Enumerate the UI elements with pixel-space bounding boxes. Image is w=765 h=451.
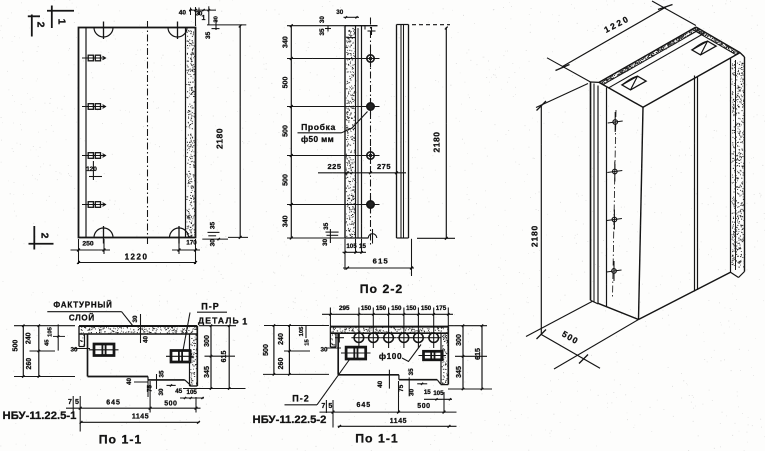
svg-text:35: 35 [210, 222, 217, 230]
svg-text:40: 40 [179, 10, 187, 17]
svg-text:150: 150 [361, 305, 372, 312]
svg-text:2180: 2180 [432, 132, 442, 153]
svg-text:40: 40 [143, 336, 150, 344]
svg-text:1220: 1220 [125, 252, 149, 261]
svg-text:45: 45 [45, 339, 51, 346]
svg-text:500: 500 [417, 403, 430, 410]
svg-text:120: 120 [86, 166, 97, 173]
svg-text:75: 75 [398, 384, 405, 392]
svg-text:1: 1 [202, 15, 206, 22]
svg-text:500: 500 [13, 340, 20, 352]
svg-text:40: 40 [377, 380, 384, 388]
svg-text:П-2: П-2 [292, 393, 309, 403]
svg-text:340: 340 [283, 36, 290, 48]
svg-text:35: 35 [408, 368, 415, 376]
svg-text:7: 7 [321, 403, 325, 410]
svg-text:150: 150 [406, 305, 417, 312]
svg-text:240: 240 [26, 332, 33, 344]
svg-text:7: 7 [68, 399, 72, 406]
svg-text:15: 15 [359, 243, 366, 250]
svg-text:30: 30 [210, 239, 217, 247]
svg-text:105: 105 [187, 389, 198, 396]
svg-text:45: 45 [175, 388, 182, 395]
svg-text:СЛОЙ: СЛОЙ [69, 314, 95, 323]
svg-text:2: 2 [39, 233, 51, 239]
svg-text:П-Р: П-Р [201, 301, 219, 311]
svg-text:150: 150 [376, 305, 387, 312]
svg-text:150: 150 [421, 305, 432, 312]
svg-text:30: 30 [132, 315, 139, 323]
svg-text:35: 35 [159, 370, 166, 378]
svg-text:105: 105 [47, 326, 53, 336]
svg-text:НБУ-11.22.5-2: НБУ-11.22.5-2 [253, 414, 327, 426]
svg-text:615: 615 [475, 348, 482, 360]
svg-text:240: 240 [278, 333, 285, 345]
svg-text:НБУ-11.22.5-1: НБУ-11.22.5-1 [3, 410, 77, 422]
svg-text:5: 5 [328, 403, 332, 410]
svg-text:По 1-1: По 1-1 [355, 432, 399, 446]
svg-text:По 2-2: По 2-2 [360, 282, 404, 296]
svg-text:105: 105 [433, 390, 444, 397]
svg-text:1: 1 [242, 316, 247, 326]
svg-text:345: 345 [204, 366, 211, 378]
svg-text:345: 345 [456, 366, 463, 378]
svg-text:500: 500 [283, 125, 290, 137]
svg-text:150: 150 [391, 305, 402, 312]
svg-text:260: 260 [278, 358, 285, 370]
svg-text:295: 295 [339, 305, 350, 312]
svg-text:1: 1 [56, 19, 68, 25]
svg-text:105: 105 [299, 326, 305, 336]
svg-text:225: 225 [327, 162, 341, 171]
svg-text:645: 645 [356, 402, 371, 409]
svg-text:ДЕТАЛЬ: ДЕТАЛЬ [198, 315, 240, 325]
svg-text:30: 30 [409, 388, 416, 396]
svg-text:По 1-1: По 1-1 [99, 433, 143, 447]
svg-text:500: 500 [283, 174, 290, 186]
svg-text:30: 30 [319, 16, 326, 24]
svg-text:1145: 1145 [390, 418, 407, 425]
svg-text:2180: 2180 [215, 128, 225, 149]
svg-text:ф100: ф100 [379, 352, 402, 361]
svg-text:170: 170 [186, 239, 197, 246]
svg-text:300: 300 [456, 334, 463, 346]
svg-text:500: 500 [164, 400, 177, 407]
svg-text:30: 30 [320, 347, 328, 354]
svg-text:340: 340 [283, 215, 290, 227]
svg-text:30: 30 [322, 238, 329, 246]
svg-text:615: 615 [373, 257, 389, 266]
svg-text:30: 30 [336, 9, 344, 16]
svg-text:250: 250 [82, 241, 94, 248]
svg-text:500: 500 [283, 77, 290, 89]
svg-text:35: 35 [323, 222, 330, 230]
svg-text:35: 35 [205, 31, 212, 39]
svg-text:175: 175 [436, 305, 447, 312]
svg-text:2180: 2180 [530, 225, 540, 247]
svg-text:35: 35 [319, 28, 326, 36]
svg-text:1145: 1145 [132, 413, 149, 420]
svg-text:40: 40 [126, 378, 133, 386]
svg-text:Пробка: Пробка [301, 122, 336, 132]
svg-text:15: 15 [424, 389, 431, 396]
svg-text:275: 275 [377, 162, 391, 171]
svg-text:300: 300 [204, 335, 211, 347]
svg-text:2: 2 [35, 22, 47, 28]
svg-text:ФАКТУРНЫЙ: ФАКТУРНЫЙ [53, 301, 112, 310]
svg-text:ф50 мм: ф50 мм [301, 135, 334, 144]
svg-text:260: 260 [26, 358, 33, 370]
svg-text:30: 30 [70, 347, 78, 354]
svg-text:615: 615 [221, 351, 228, 363]
svg-text:15: 15 [305, 339, 311, 346]
svg-text:645: 645 [106, 399, 121, 406]
